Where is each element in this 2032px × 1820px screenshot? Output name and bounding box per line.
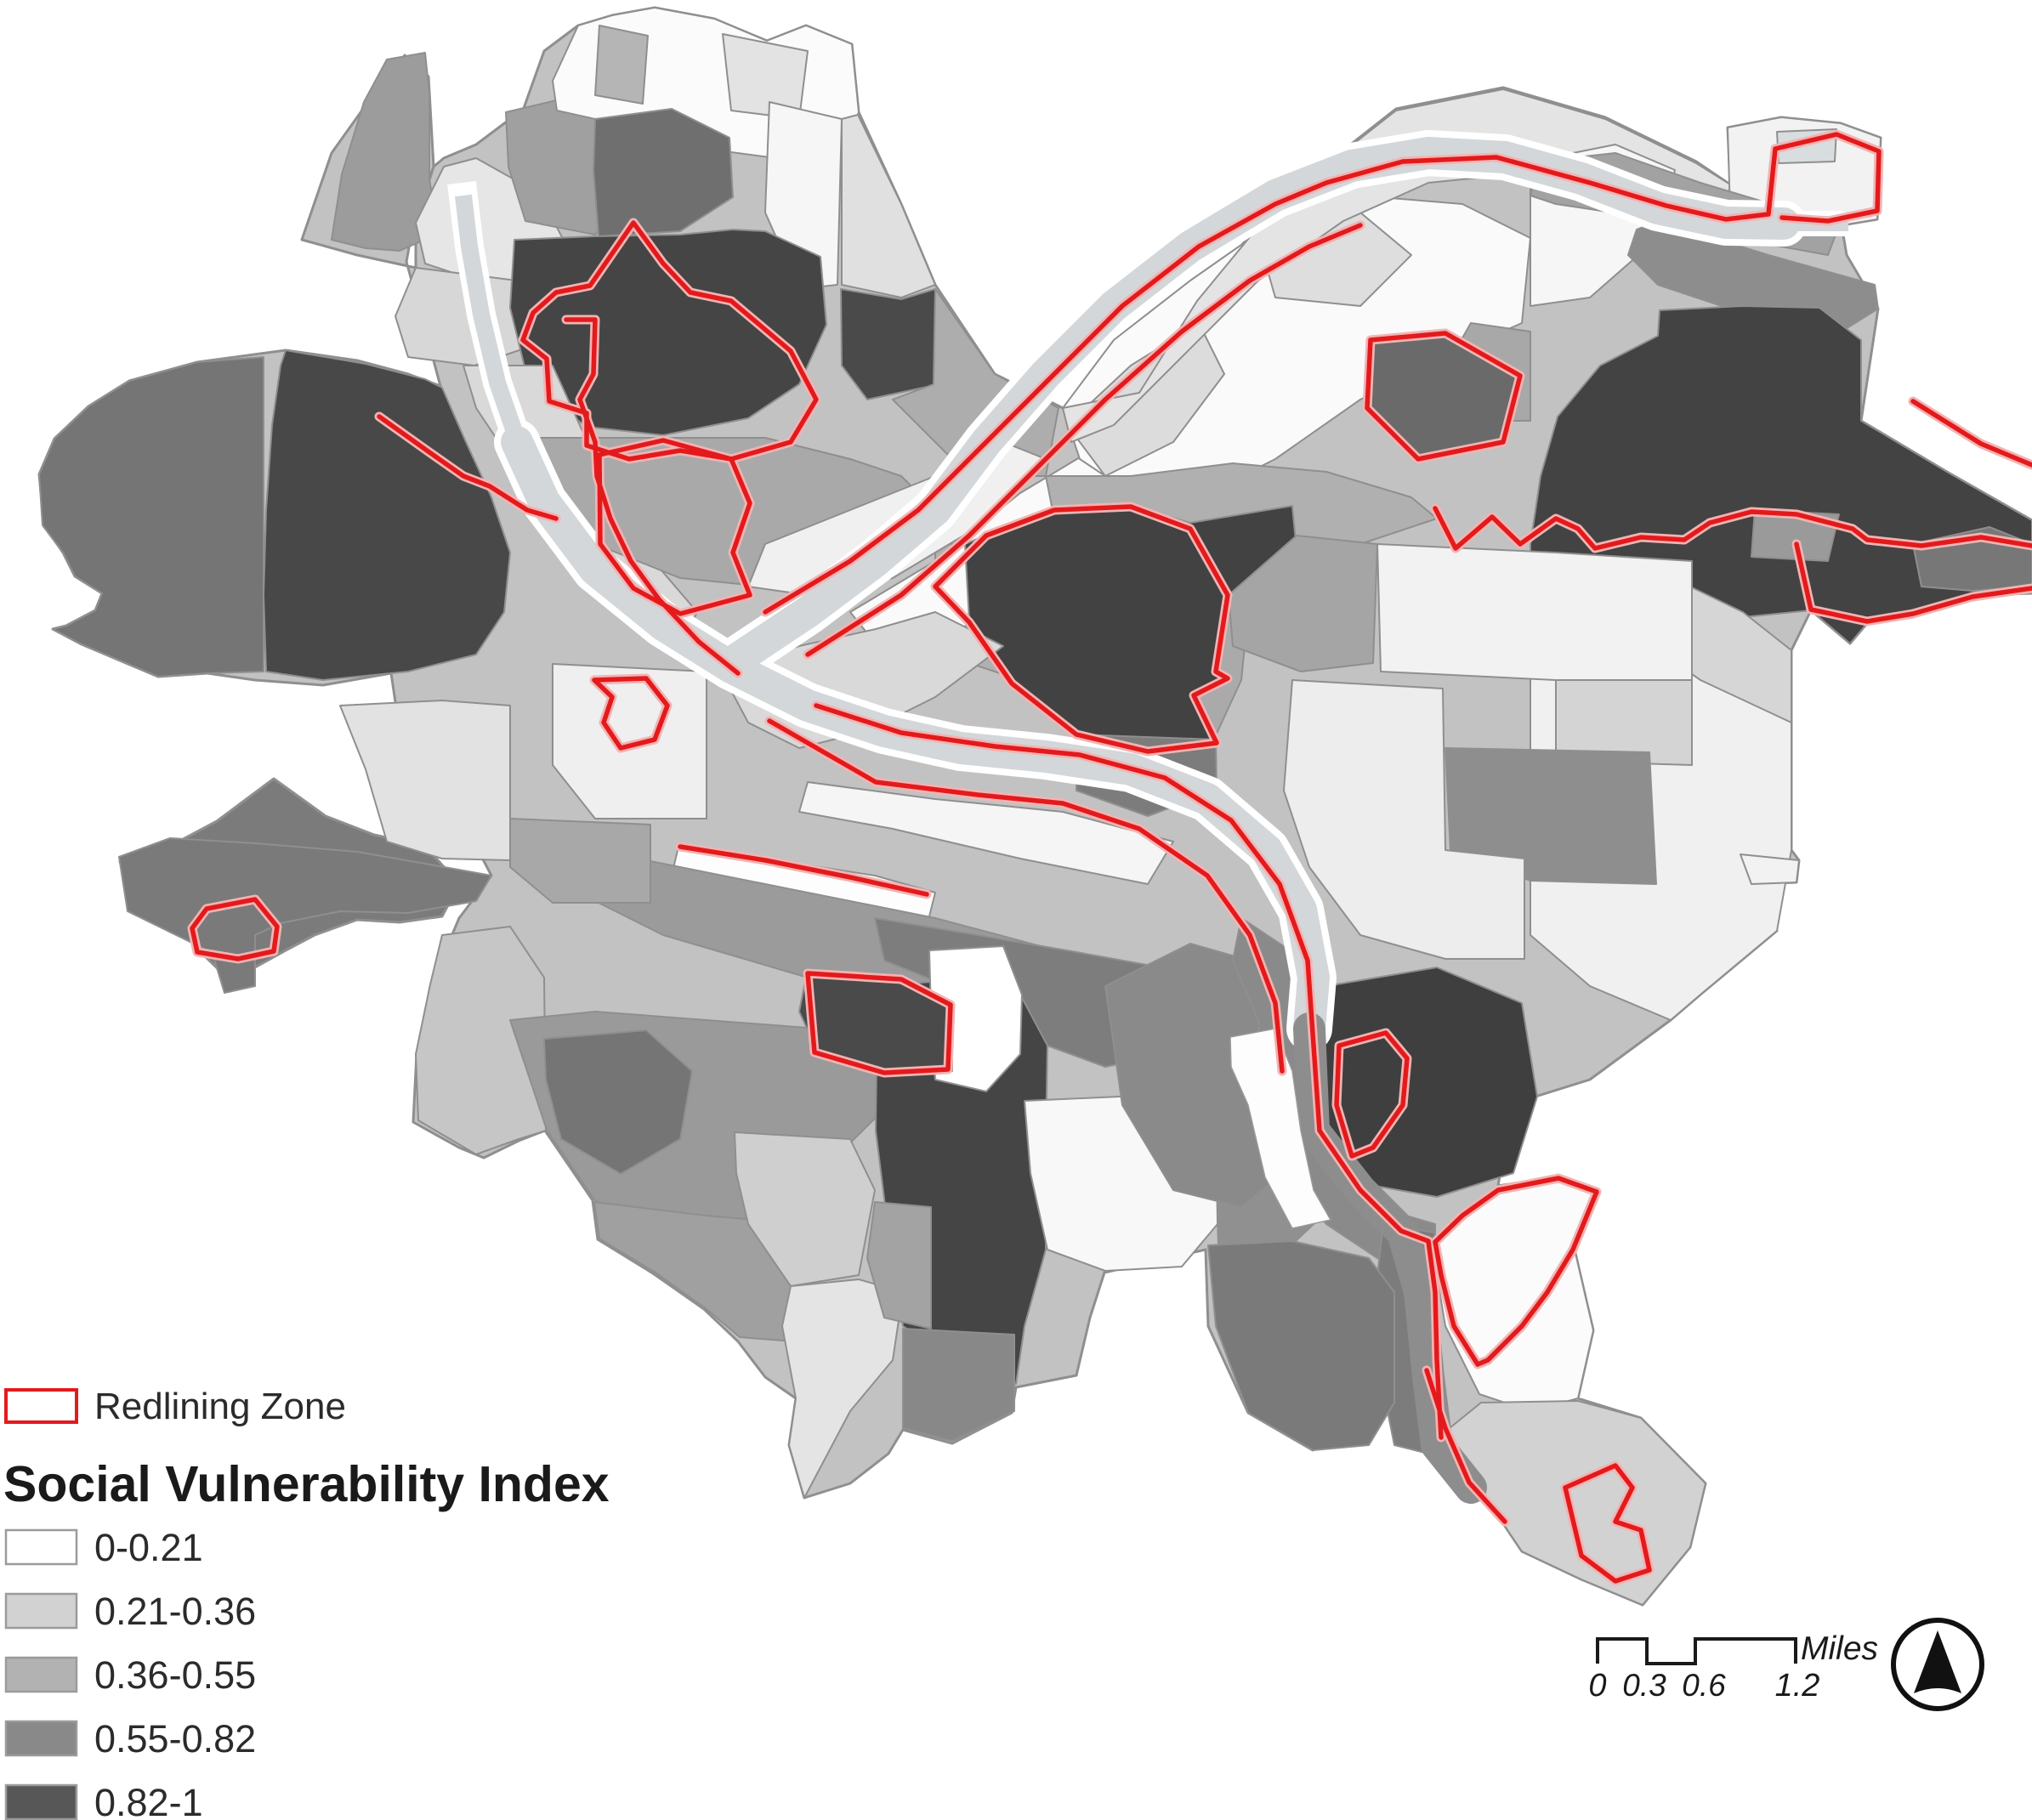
svg-text:0-0.21: 0-0.21 [94,1526,203,1569]
svg-text:0.36-0.55: 0.36-0.55 [94,1653,256,1697]
svg-text:Miles: Miles [1801,1630,1878,1667]
svg-text:Redlining Zone: Redlining Zone [94,1386,346,1427]
svg-text:0.6: 0.6 [1682,1668,1726,1703]
svg-text:Social Vulnerability Index: Social Vulnerability Index [3,1456,610,1512]
svg-text:0: 0 [1588,1668,1606,1704]
svg-text:0.3: 0.3 [1622,1668,1666,1703]
svg-text:0.21-0.36: 0.21-0.36 [94,1590,256,1633]
svg-text:1.2: 1.2 [1775,1668,1820,1704]
svg-text:0.55-0.82: 0.55-0.82 [94,1717,256,1760]
svg-text:0.82-1: 0.82-1 [94,1781,203,1820]
